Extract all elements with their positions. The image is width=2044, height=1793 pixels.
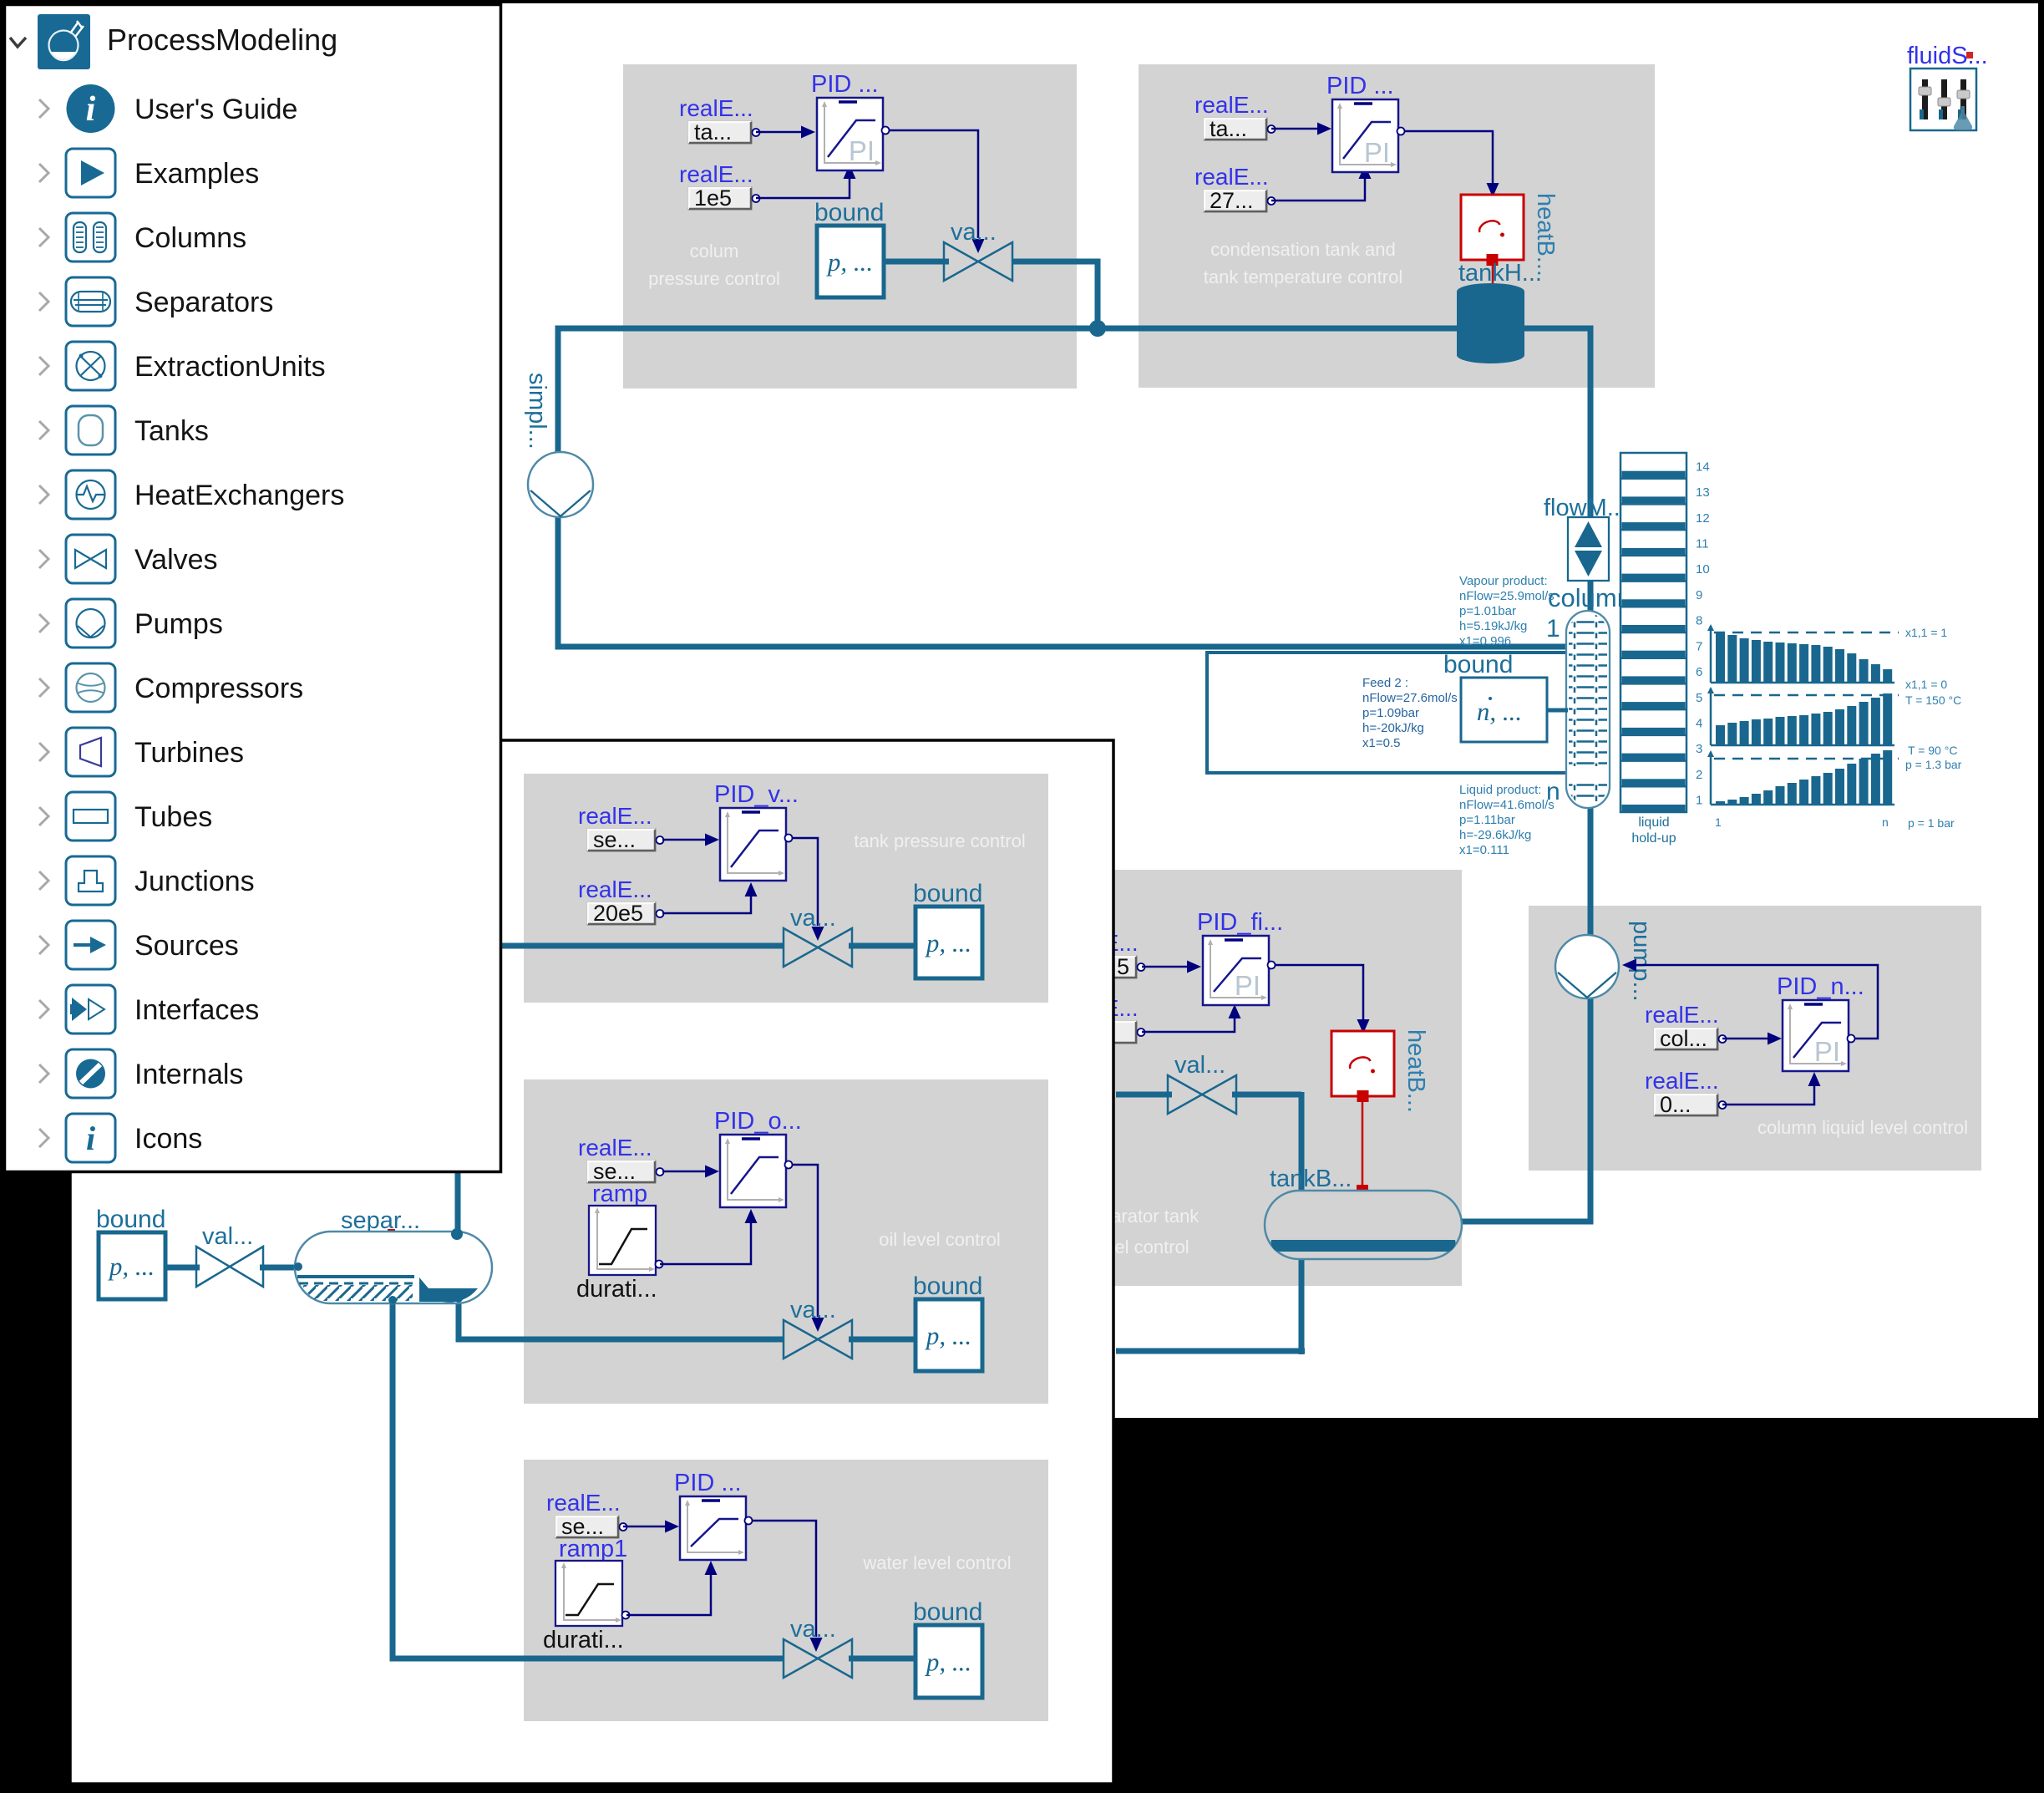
svg-text:x1=0.5: x1=0.5 — [1362, 736, 1400, 750]
svg-text:x1,1 = 1: x1,1 = 1 — [1905, 626, 1947, 639]
svg-text:Examples: Examples — [134, 158, 259, 190]
svg-text:Tubes: Tubes — [134, 801, 212, 833]
svg-text:7: 7 — [1696, 639, 1702, 653]
svg-text:Pumps: Pumps — [134, 608, 223, 640]
svg-text:Turbines: Turbines — [134, 737, 244, 769]
svg-text:condensation tank and: condensation tank and — [1210, 239, 1395, 260]
svg-text:separ...: separ... — [341, 1207, 420, 1234]
svg-text:h=-20kJ/kg: h=-20kJ/kg — [1362, 721, 1424, 735]
svg-text:bound: bound — [913, 1598, 982, 1626]
svg-text:val...: val... — [1174, 1052, 1225, 1079]
svg-text:realE...: realE... — [1194, 164, 1269, 190]
svg-text:PID ...: PID ... — [811, 71, 879, 98]
svg-text:va...: va... — [951, 219, 997, 246]
svg-text:Junctions: Junctions — [134, 866, 255, 897]
svg-text:Vapour product:: Vapour product: — [1459, 574, 1548, 588]
svg-text:p = 1.3 bar: p = 1.3 bar — [1905, 758, 1962, 771]
svg-text:i: i — [86, 90, 96, 129]
svg-text:bound: bound — [1443, 651, 1513, 678]
svg-text:13: 13 — [1696, 485, 1710, 500]
svg-text:realE...: realE... — [578, 876, 652, 902]
svg-text:5: 5 — [1117, 954, 1129, 979]
svg-text:PID_fi...: PID_fi... — [1197, 909, 1283, 936]
svg-text:va...: va... — [790, 1616, 836, 1643]
svg-text:Feed 2 :: Feed 2 : — [1362, 676, 1408, 690]
svg-text:PID_v...: PID_v... — [714, 781, 799, 808]
svg-text:bound: bound — [913, 1272, 982, 1300]
svg-text:20e5: 20e5 — [593, 901, 643, 926]
svg-text:PI: PI — [849, 135, 875, 166]
svg-text:T = 90 °C: T = 90 °C — [1908, 744, 1957, 757]
svg-text:6: 6 — [1696, 665, 1702, 679]
svg-text:bound: bound — [913, 880, 982, 907]
svg-text:colum: colum — [690, 241, 739, 262]
svg-text:tankB...: tankB... — [1270, 1166, 1352, 1192]
svg-text:p, ...: p, ... — [826, 247, 873, 277]
svg-text:n: n — [1882, 815, 1889, 829]
svg-text:0...: 0... — [1660, 1092, 1691, 1117]
svg-text:1: 1 — [1696, 794, 1702, 808]
svg-text:tankH...: tankH... — [1458, 260, 1542, 287]
svg-text:heatB...: heatB... — [1402, 1029, 1429, 1113]
svg-text:10: 10 — [1696, 562, 1710, 577]
svg-text:1e5: 1e5 — [694, 185, 732, 211]
svg-text:durati...: durati... — [576, 1276, 657, 1303]
svg-text:realE...: realE... — [546, 1490, 621, 1516]
svg-text:column liquid level control: column liquid level control — [1757, 1117, 1968, 1138]
svg-text:PI: PI — [1235, 970, 1260, 1001]
svg-text:Sources: Sources — [134, 930, 239, 962]
svg-text:col...: col... — [1660, 1026, 1707, 1051]
svg-text:fluidS...: fluidS... — [1907, 43, 1988, 69]
svg-text:va...: va... — [790, 905, 836, 932]
svg-text:Separators: Separators — [134, 287, 273, 318]
svg-text:Liquid product:: Liquid product: — [1459, 783, 1541, 797]
svg-text:Tanks: Tanks — [134, 415, 209, 447]
svg-text:PID_o...: PID_o... — [714, 1108, 802, 1135]
svg-text:ramp1: ramp1 — [559, 1536, 627, 1562]
svg-text:p, ...: p, ... — [925, 928, 971, 957]
svg-text:n, ...: n, ... — [1477, 697, 1522, 726]
svg-text:4: 4 — [1696, 717, 1702, 731]
svg-text:simpl...: simpl... — [524, 373, 550, 450]
svg-text:PI: PI — [1814, 1036, 1840, 1067]
svg-text:ProcessModeling: ProcessModeling — [107, 23, 337, 57]
svg-text:p = 1 bar: p = 1 bar — [1908, 816, 1955, 830]
svg-text:realE...: realE... — [1645, 1068, 1719, 1094]
svg-text:oil level control: oil level control — [879, 1229, 1001, 1250]
svg-text:8: 8 — [1696, 614, 1702, 628]
svg-text:se...: se... — [593, 827, 636, 852]
svg-text:durati...: durati... — [543, 1627, 624, 1653]
svg-text:val...: val... — [202, 1223, 253, 1250]
svg-text:p=1.01bar: p=1.01bar — [1459, 604, 1516, 618]
svg-text:h=5.19kJ/kg: h=5.19kJ/kg — [1459, 619, 1527, 633]
svg-text:p=1.09bar: p=1.09bar — [1362, 706, 1419, 720]
svg-text:1: 1 — [1546, 615, 1560, 643]
svg-text:PID ...: PID ... — [674, 1470, 742, 1496]
svg-text:PID_n...: PID_n... — [1777, 973, 1864, 1000]
svg-text:p=1.11bar: p=1.11bar — [1459, 813, 1515, 827]
svg-text:Internals: Internals — [134, 1059, 243, 1090]
svg-text:va...: va... — [790, 1297, 836, 1323]
svg-text:11: 11 — [1696, 537, 1709, 551]
svg-text:nFlow=27.6mol/s: nFlow=27.6mol/s — [1362, 691, 1458, 705]
svg-text:2: 2 — [1696, 768, 1702, 782]
svg-text:User's Guide: User's Guide — [134, 94, 297, 125]
svg-text:realE...: realE... — [578, 1135, 652, 1161]
svg-text:bound: bound — [96, 1206, 165, 1233]
svg-text:p, ...: p, ... — [925, 1321, 971, 1350]
svg-text:column: column — [1548, 583, 1631, 612]
svg-text:PID ...: PID ... — [1326, 73, 1394, 99]
svg-text:ramp: ramp — [592, 1181, 647, 1207]
svg-text:ExtractionUnits: ExtractionUnits — [134, 351, 326, 383]
svg-text:hold-up: hold-up — [1631, 831, 1676, 846]
svg-text:12: 12 — [1696, 511, 1710, 526]
svg-text:x1,1 = 0: x1,1 = 0 — [1905, 678, 1947, 691]
svg-text:Icons: Icons — [134, 1123, 202, 1155]
svg-text:p, ...: p, ... — [108, 1252, 155, 1281]
svg-text:3: 3 — [1696, 742, 1702, 756]
svg-text:tank pressure control: tank pressure control — [854, 830, 1025, 851]
svg-text:realE...: realE... — [679, 95, 753, 121]
svg-text:realE...: realE... — [1194, 92, 1269, 118]
svg-text:Interfaces: Interfaces — [134, 994, 259, 1026]
svg-text:T = 150 °C: T = 150 °C — [1905, 693, 1961, 707]
svg-text:realE...: realE... — [1645, 1002, 1719, 1028]
svg-text:9: 9 — [1696, 588, 1702, 602]
svg-text:i: i — [86, 1120, 95, 1157]
svg-text:realE...: realE... — [679, 161, 753, 187]
svg-text:ta...: ta... — [1210, 116, 1247, 141]
svg-text:ta...: ta... — [694, 119, 732, 145]
svg-text:realE...: realE... — [578, 803, 652, 829]
svg-text:liquid: liquid — [1638, 815, 1669, 830]
svg-text:x1=0.996: x1=0.996 — [1459, 634, 1511, 648]
svg-text:27...: 27... — [1210, 188, 1254, 213]
svg-text:HeatExchangers: HeatExchangers — [134, 480, 344, 511]
svg-text:bound: bound — [814, 199, 884, 226]
svg-text:Columns: Columns — [134, 222, 246, 254]
svg-text:Compressors: Compressors — [134, 673, 303, 704]
svg-text:PI: PI — [1364, 137, 1390, 168]
svg-text:14: 14 — [1696, 460, 1710, 474]
svg-text:1: 1 — [1715, 815, 1722, 829]
svg-text:tank temperature control: tank temperature control — [1204, 267, 1402, 287]
svg-text:nFlow=41.6mol/s: nFlow=41.6mol/s — [1459, 798, 1555, 812]
svg-text:pressure control: pressure control — [648, 268, 780, 289]
svg-text:p, ...: p, ... — [925, 1648, 971, 1677]
svg-text:h=-29.6kJ/kg: h=-29.6kJ/kg — [1459, 828, 1531, 842]
svg-text:Valves: Valves — [134, 544, 218, 576]
svg-text:water level control: water level control — [862, 1552, 1011, 1573]
svg-text:5: 5 — [1696, 691, 1702, 705]
svg-text:nFlow=25.9mol/s: nFlow=25.9mol/s — [1459, 589, 1555, 603]
svg-text:x1=0.111: x1=0.111 — [1459, 843, 1509, 857]
